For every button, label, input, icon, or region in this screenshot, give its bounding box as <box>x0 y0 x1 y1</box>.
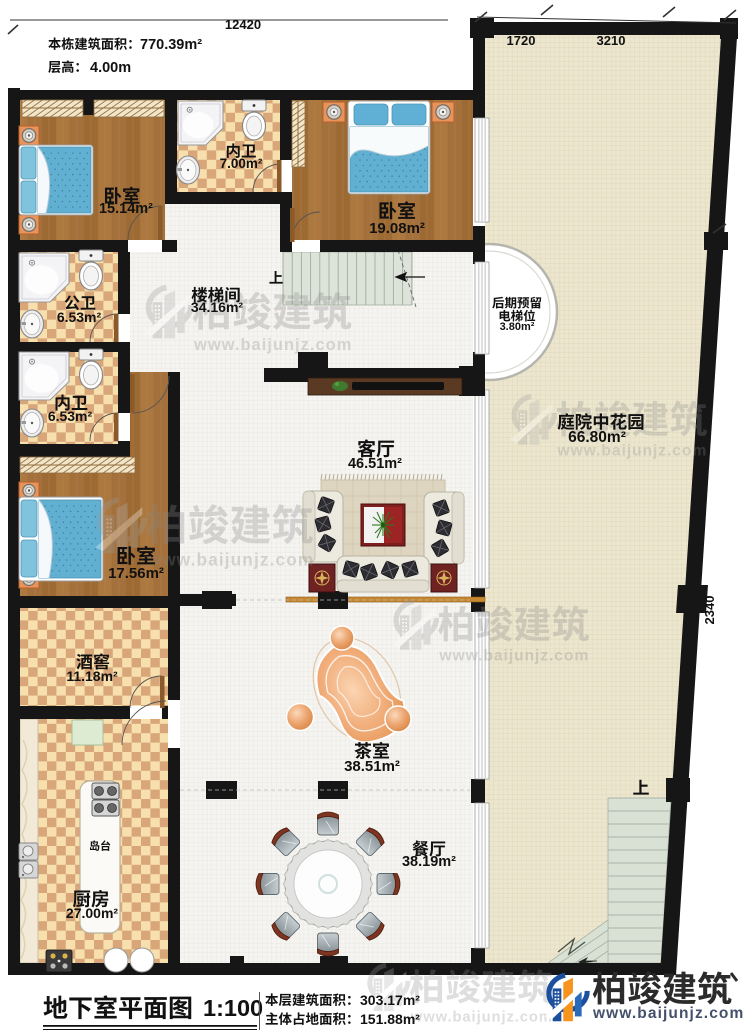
svg-text:11.18m²: 11.18m² <box>66 668 118 684</box>
svg-text:17.56m²: 17.56m² <box>108 565 164 582</box>
svg-text:46.51m²: 46.51m² <box>348 456 402 472</box>
svg-text:7.00m²: 7.00m² <box>220 156 263 171</box>
svg-text:27.00m²: 27.00m² <box>66 905 118 921</box>
svg-text:3210: 3210 <box>597 33 626 48</box>
svg-text:6.53m²: 6.53m² <box>48 408 93 424</box>
svg-text:www.baijunjz.com: www.baijunjz.com <box>147 549 315 569</box>
svg-text:303.17m²: 303.17m² <box>360 992 420 1008</box>
svg-text:www.baijunjz.com: www.baijunjz.com <box>592 1005 744 1022</box>
svg-text:15.14m²: 15.14m² <box>99 201 153 217</box>
svg-text:12420: 12420 <box>225 17 261 32</box>
svg-text:www.baijunjz.com: www.baijunjz.com <box>410 1009 553 1025</box>
svg-text:1720: 1720 <box>507 33 536 48</box>
svg-text:2340: 2340 <box>702 596 717 625</box>
svg-text:6.53m²: 6.53m² <box>57 309 102 325</box>
svg-text:34.16m²: 34.16m² <box>191 299 243 315</box>
svg-text:4.00m: 4.00m <box>90 60 131 76</box>
svg-text:770.39m²: 770.39m² <box>140 37 202 53</box>
svg-text:3.80m²: 3.80m² <box>500 321 535 333</box>
svg-text:38.19m²: 38.19m² <box>402 854 456 870</box>
svg-text:19.08m²: 19.08m² <box>369 220 425 237</box>
svg-text:1:100: 1:100 <box>203 995 263 1021</box>
svg-text:66.80m²: 66.80m² <box>568 429 626 446</box>
svg-text:38.51m²: 38.51m² <box>344 758 400 775</box>
svg-text:www.baijunjz.com: www.baijunjz.com <box>438 648 589 665</box>
svg-text:151.88m²: 151.88m² <box>360 1011 420 1027</box>
svg-text:www.baijunjz.com: www.baijunjz.com <box>193 336 352 354</box>
